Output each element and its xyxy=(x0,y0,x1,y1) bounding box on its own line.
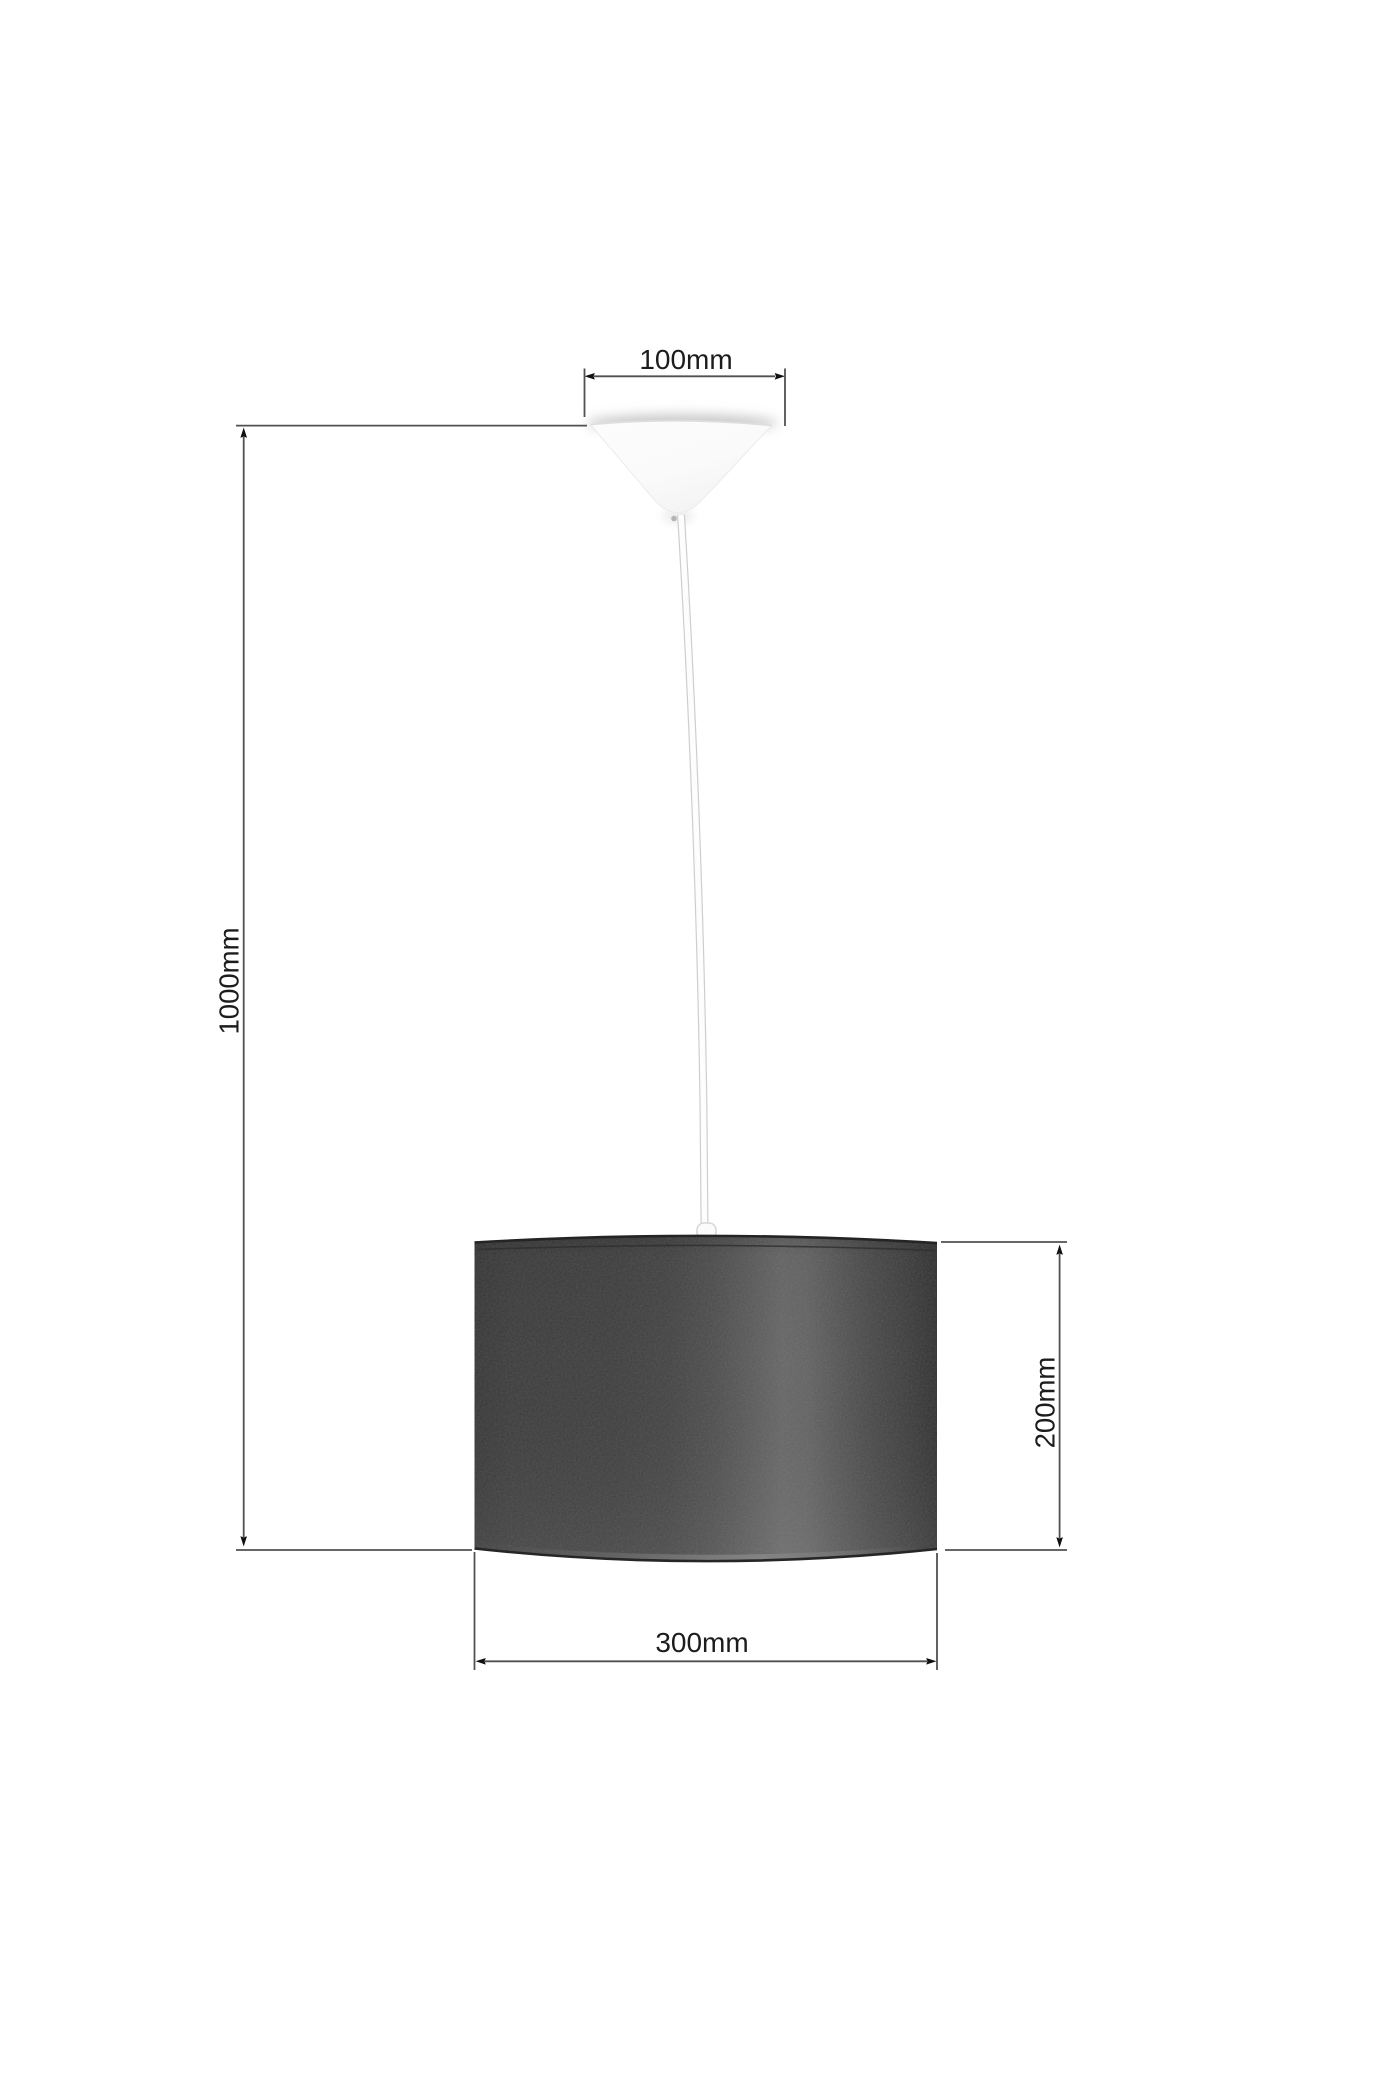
svg-text:200mm: 200mm xyxy=(1030,1357,1061,1449)
svg-text:1000mm: 1000mm xyxy=(214,928,245,1035)
svg-text:100mm: 100mm xyxy=(639,344,732,375)
svg-text:300mm: 300mm xyxy=(655,1627,748,1658)
